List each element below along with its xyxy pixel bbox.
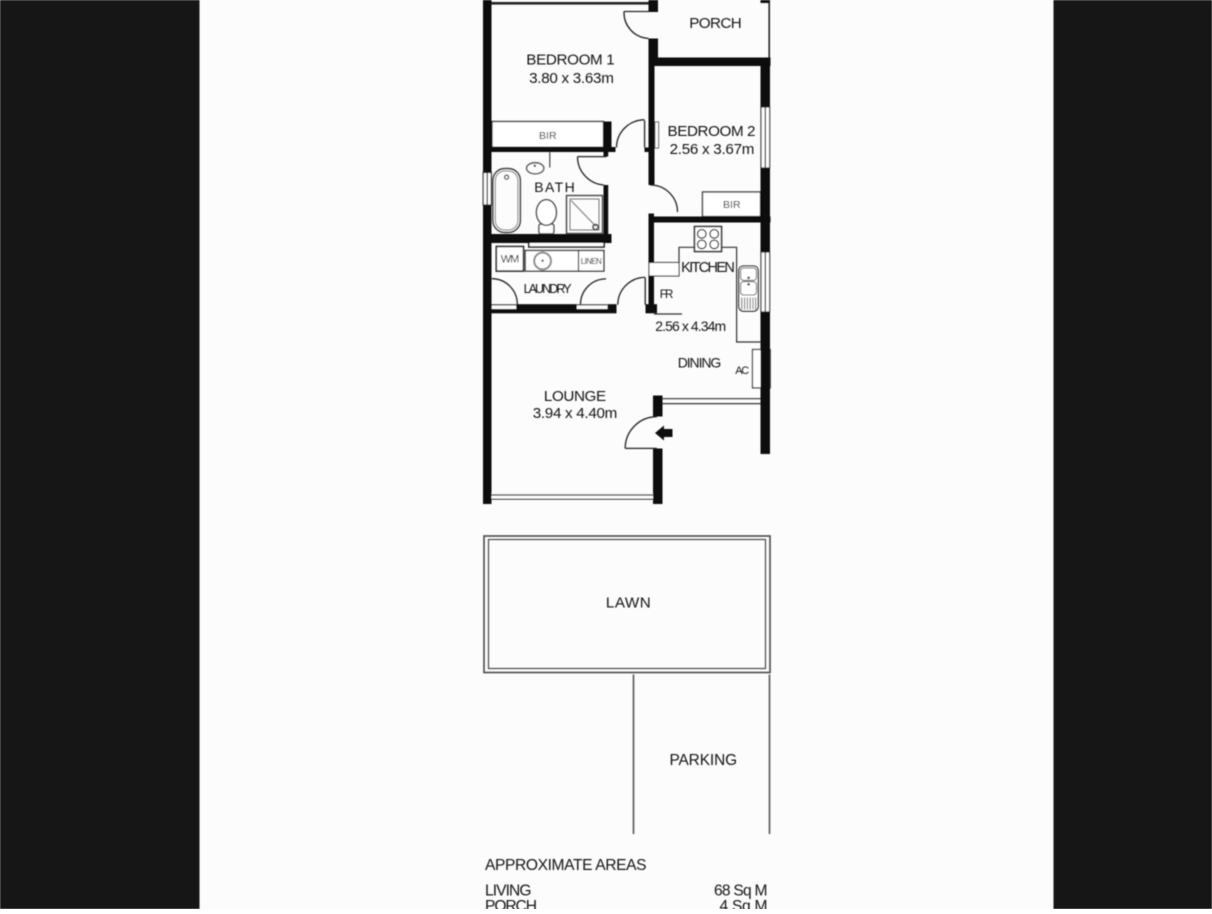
svg-text:PORCH: PORCH xyxy=(485,898,537,909)
svg-text:PORCH: PORCH xyxy=(689,15,742,32)
svg-text:DINING: DINING xyxy=(678,354,722,370)
svg-text:LAUNDRY: LAUNDRY xyxy=(524,282,573,296)
svg-text:BEDROOM 2: BEDROOM 2 xyxy=(668,123,756,140)
svg-text:4 Sq M: 4 Sq M xyxy=(720,898,768,909)
svg-text:3.80 x 3.63m: 3.80 x 3.63m xyxy=(529,70,614,87)
svg-text:2.56 x 3.67m: 2.56 x 3.67m xyxy=(670,141,755,158)
svg-text:PARKING: PARKING xyxy=(669,752,737,769)
svg-text:KITCHEN: KITCHEN xyxy=(681,260,735,276)
svg-text:LAWN: LAWN xyxy=(606,594,651,611)
svg-text:BATH: BATH xyxy=(534,179,575,195)
svg-text:LINEN: LINEN xyxy=(581,257,602,266)
svg-text:WM: WM xyxy=(501,254,520,266)
svg-text:LOUNGE: LOUNGE xyxy=(544,388,606,405)
svg-text:68 Sq M: 68 Sq M xyxy=(714,882,768,899)
svg-text:LIVING: LIVING xyxy=(485,882,532,899)
svg-text:BIR: BIR xyxy=(723,199,741,211)
svg-text:FR: FR xyxy=(660,289,674,301)
svg-text:BEDROOM 1: BEDROOM 1 xyxy=(526,52,614,69)
svg-text:2.56 x 4.34m: 2.56 x 4.34m xyxy=(655,318,726,334)
svg-text:3.94 x 4.40m: 3.94 x 4.40m xyxy=(533,405,618,422)
svg-text:APPROXIMATE AREAS: APPROXIMATE AREAS xyxy=(485,857,647,874)
svg-text:BIR: BIR xyxy=(539,130,557,142)
svg-text:AC: AC xyxy=(735,365,749,377)
